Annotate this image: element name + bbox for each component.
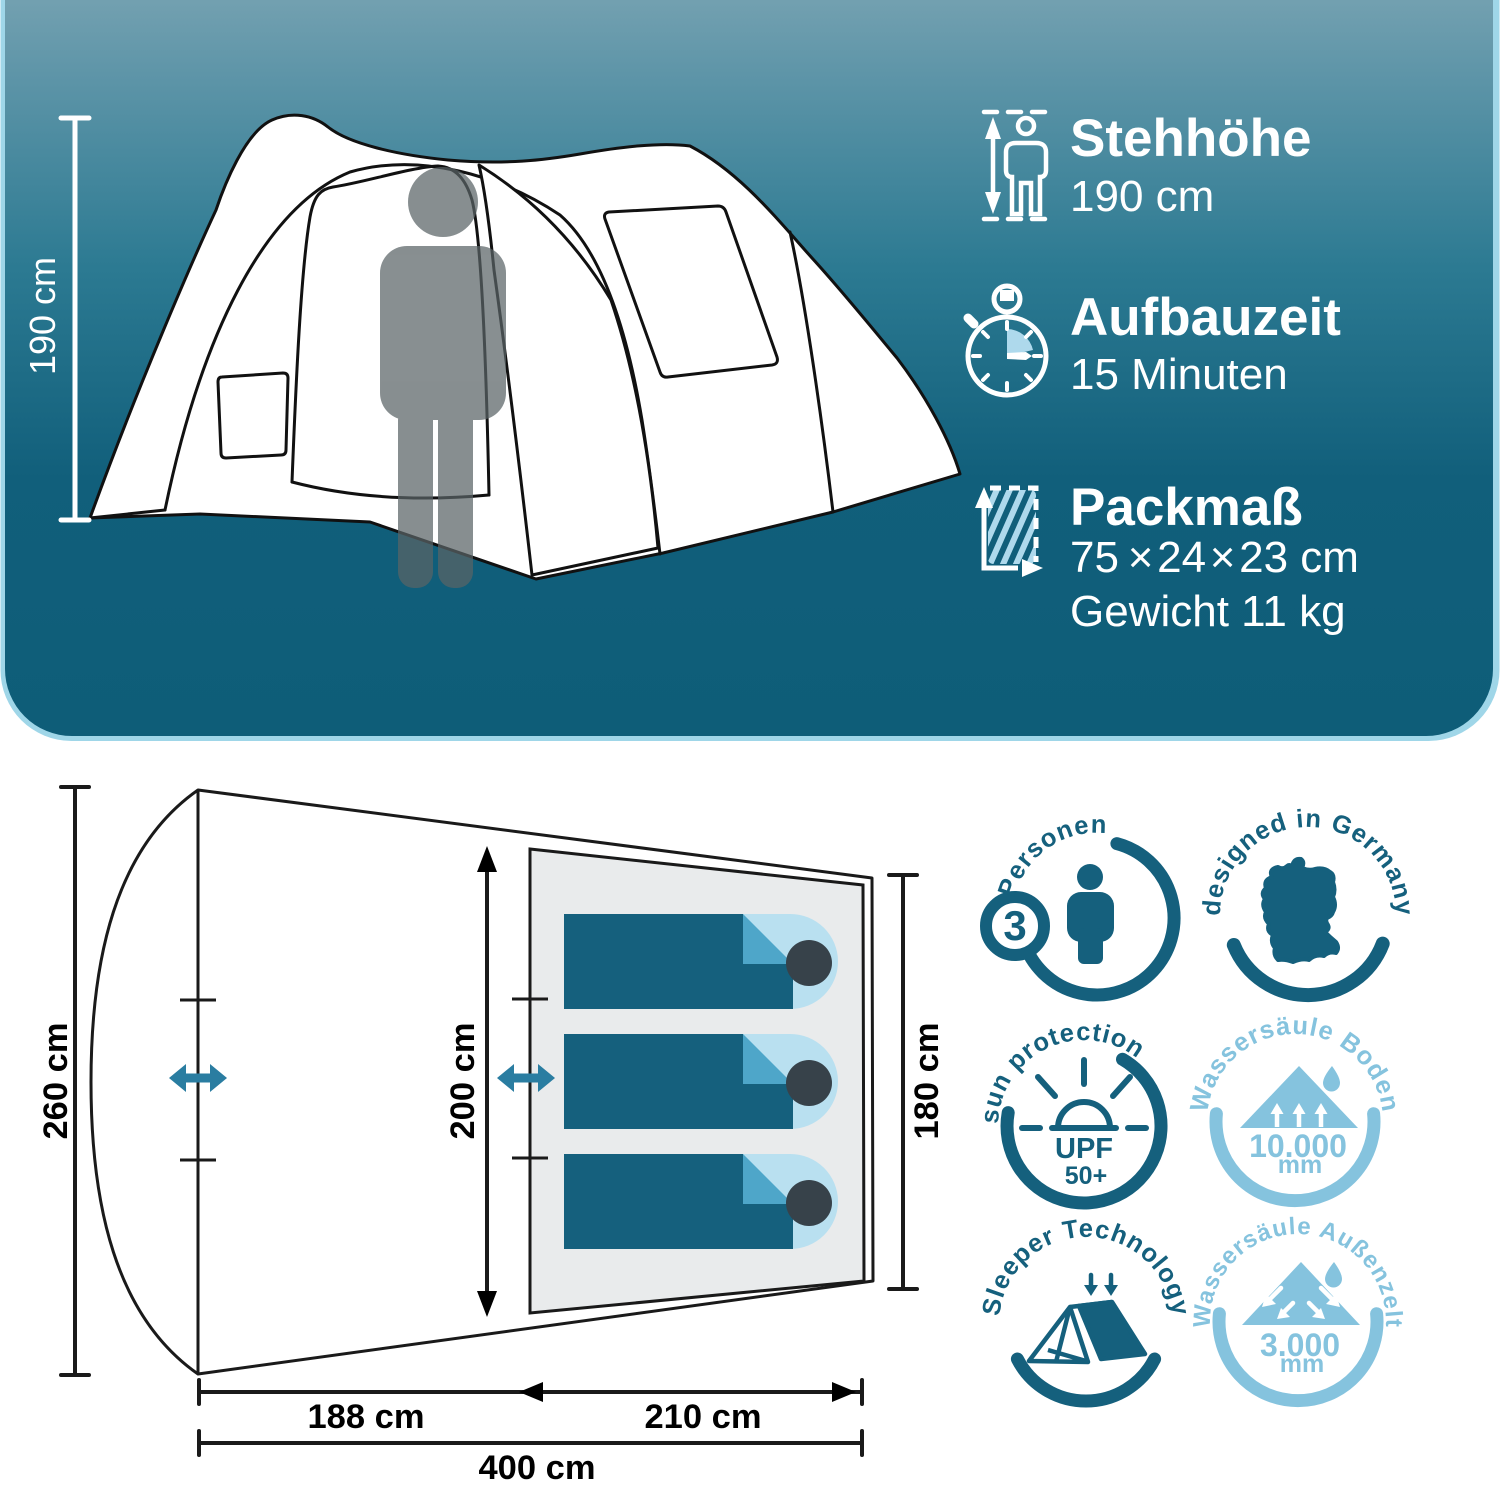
svg-text:Packmaß: Packmaß: [1070, 478, 1303, 537]
svg-text:50+: 50+: [1065, 1162, 1107, 1190]
svg-text:mm: mm: [1278, 1151, 1322, 1179]
svg-text:180 cm: 180 cm: [908, 1022, 946, 1139]
svg-text:Gewicht 11 kg: Gewicht 11 kg: [1070, 587, 1346, 636]
svg-text:200 cm: 200 cm: [444, 1022, 482, 1139]
svg-text:400 cm: 400 cm: [478, 1449, 595, 1487]
svg-text:75 × 24 × 23 cm: 75 × 24 × 23 cm: [1070, 533, 1359, 582]
svg-text:3: 3: [1003, 902, 1026, 949]
svg-text:210 cm: 210 cm: [644, 1398, 761, 1436]
svg-text:190 cm: 190 cm: [1070, 172, 1214, 221]
svg-text:Aufbauzeit: Aufbauzeit: [1070, 288, 1341, 347]
svg-text:UPF: UPF: [1055, 1133, 1113, 1165]
svg-text:15 Minuten: 15 Minuten: [1070, 350, 1288, 399]
svg-text:188 cm: 188 cm: [307, 1398, 424, 1436]
svg-text:mm: mm: [1280, 1350, 1324, 1378]
svg-text:190 cm: 190 cm: [22, 257, 63, 375]
svg-text:260 cm: 260 cm: [37, 1022, 75, 1139]
svg-text:Stehhöhe: Stehhöhe: [1070, 109, 1311, 168]
